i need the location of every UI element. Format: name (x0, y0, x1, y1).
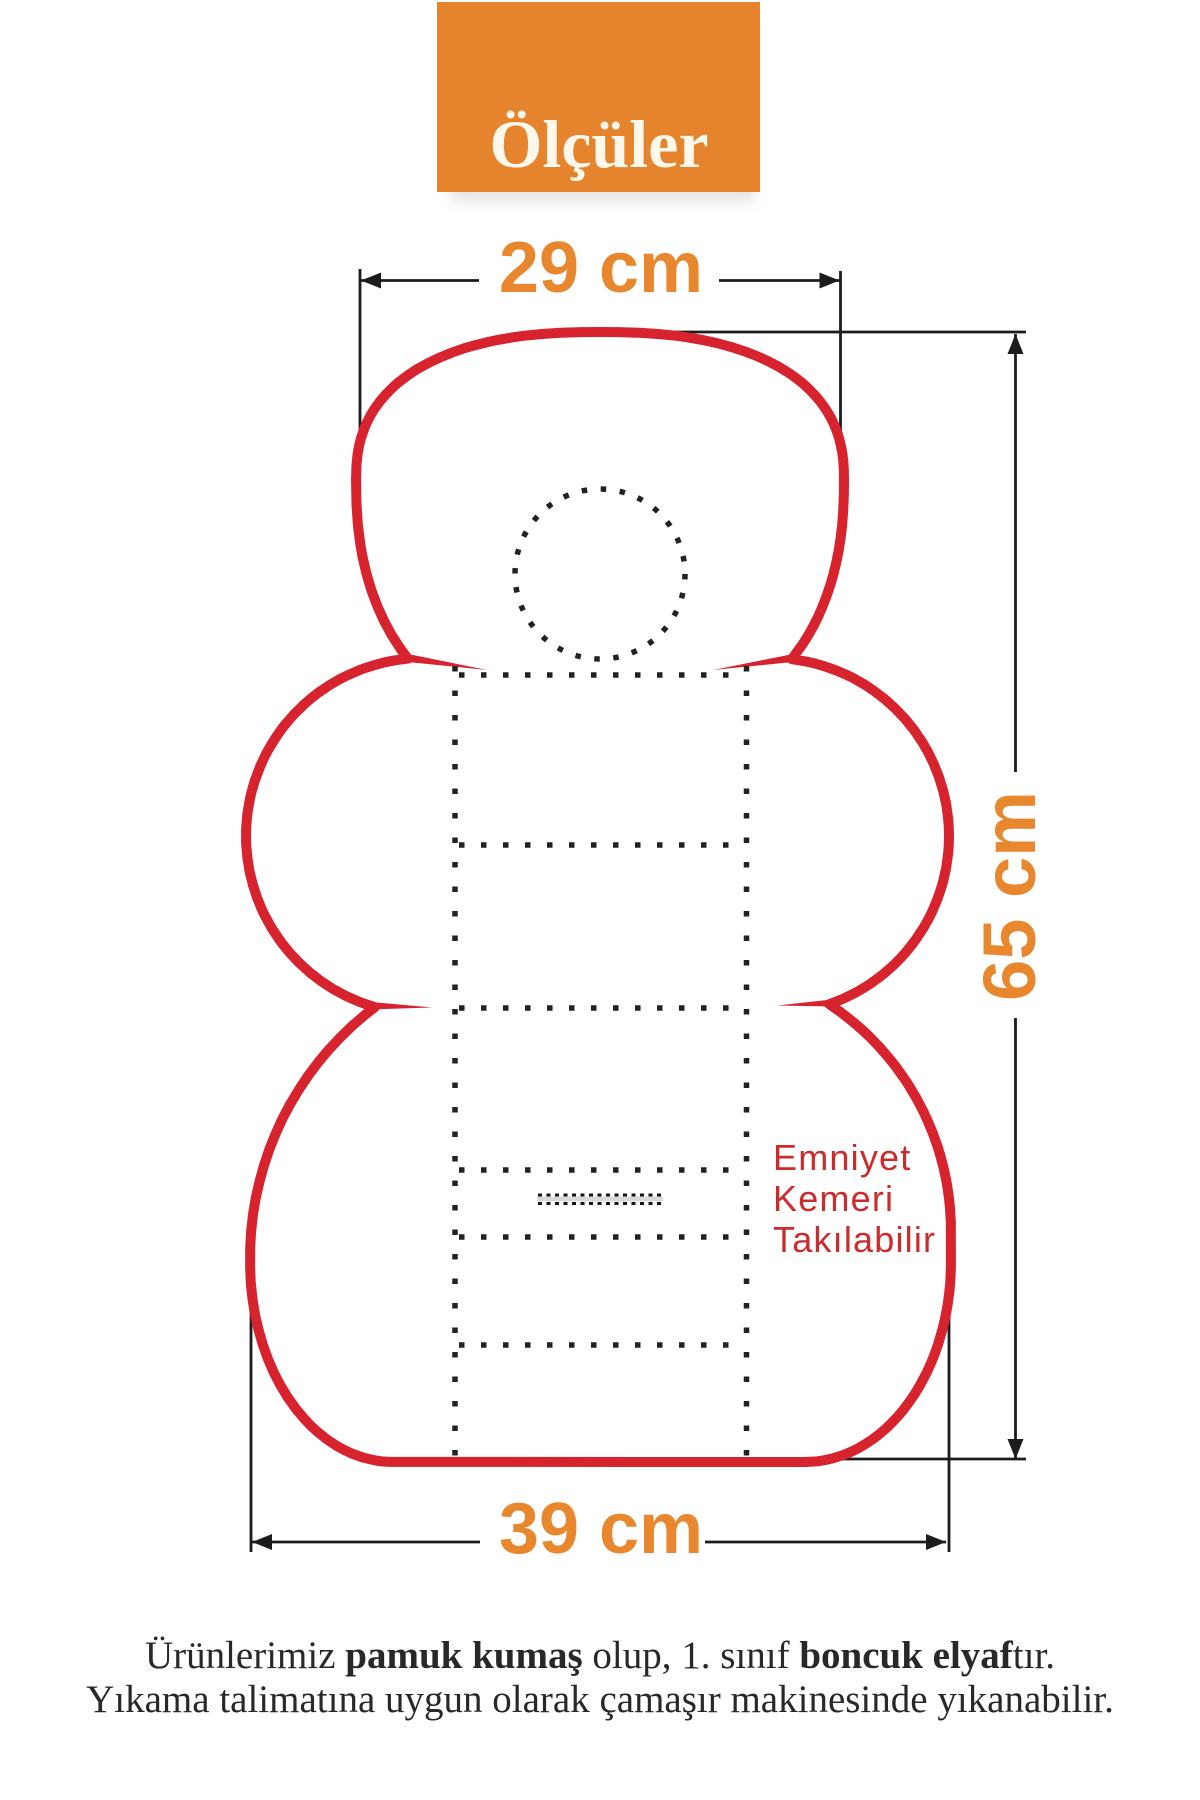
svg-text:Kemeri: Kemeri (773, 1178, 894, 1219)
svg-text:Ürünlerimiz pamuk kumaş olup,: Ürünlerimiz pamuk kumaş olup, 1. sınıf b… (145, 1634, 1055, 1677)
svg-text:65 cm: 65 cm (968, 791, 1051, 1001)
svg-text:Yıkama talimatına uygun olarak: Yıkama talimatına uygun olarak çamaşır m… (86, 1678, 1114, 1721)
svg-text:Ölçüler: Ölçüler (489, 106, 708, 182)
svg-text:Emniyet: Emniyet (773, 1137, 911, 1178)
svg-text:Takılabilir: Takılabilir (773, 1219, 936, 1260)
svg-text:29 cm: 29 cm (499, 228, 703, 308)
svg-text:39 cm: 39 cm (499, 1489, 703, 1569)
